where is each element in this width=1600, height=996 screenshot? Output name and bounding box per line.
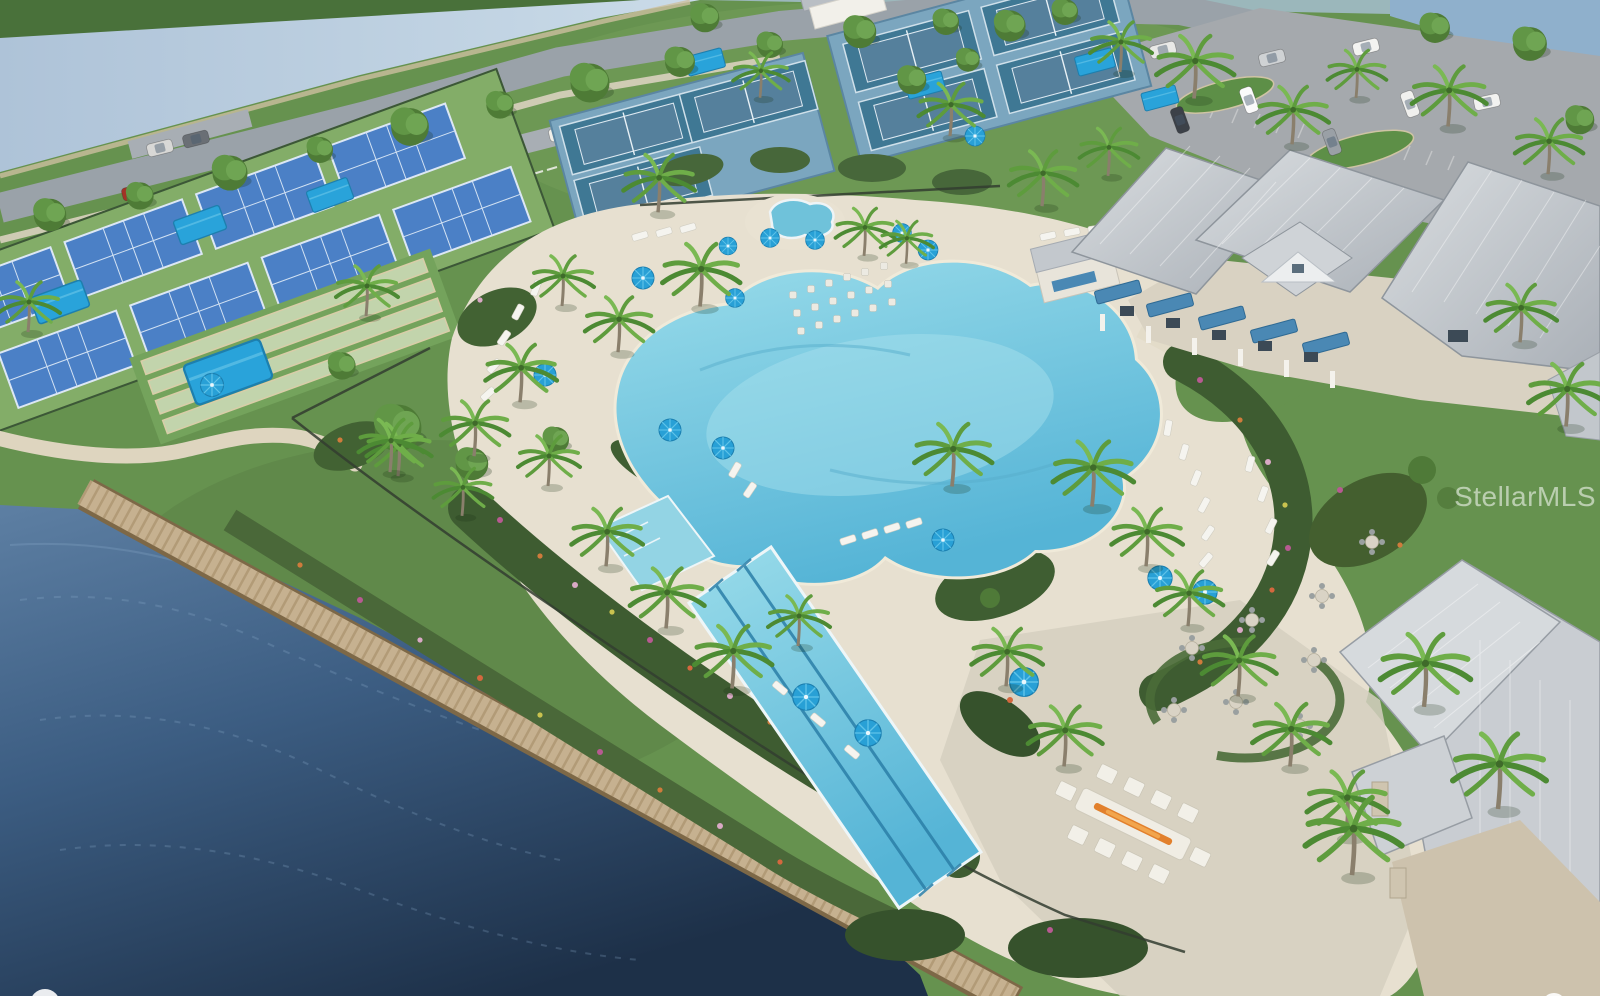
umbrella-icon: [793, 684, 819, 710]
umbrella-icon: [719, 237, 737, 255]
umbrella-icon: [761, 229, 780, 248]
bed: [750, 147, 810, 173]
stone-pillar: [1390, 868, 1406, 898]
rendering-canvas: StellarMLS: [0, 0, 1600, 996]
umbrella-icon: [855, 720, 881, 746]
aerial-rendering: StellarMLS: [0, 0, 1600, 996]
umbrella-icon: [632, 267, 654, 289]
bed: [1008, 918, 1148, 978]
watermark-text: StellarMLS: [1454, 481, 1596, 512]
spa: [745, 194, 845, 250]
umbrella-icon: [806, 231, 825, 250]
umbrella-icon: [659, 419, 681, 441]
umbrella-icon: [932, 529, 954, 551]
bed: [838, 154, 906, 182]
bed: [932, 169, 992, 195]
umbrella-icon: [200, 373, 223, 396]
umbrella-icon: [712, 437, 734, 459]
spa-water: [770, 200, 833, 238]
umbrella-icon: [965, 126, 985, 146]
bed: [845, 909, 965, 961]
gable-window: [1292, 264, 1304, 273]
